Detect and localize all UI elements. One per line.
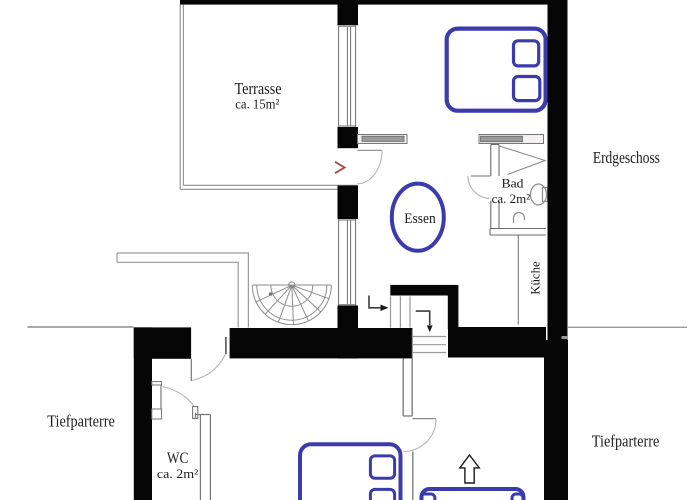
svg-text:Tiefparterre: Tiefparterre [592,431,660,450]
svg-text:Bad: Bad [502,176,525,191]
svg-text:Essen: Essen [404,211,436,227]
svg-text:Terrasse: Terrasse [235,79,282,98]
svg-text:WC: WC [167,450,189,467]
svg-text:Küche: Küche [528,261,543,295]
svg-text:ca. 2m²: ca. 2m² [157,467,199,481]
svg-text:Tiefparterre: Tiefparterre [47,411,115,430]
svg-text:ca. 2m²: ca. 2m² [492,191,531,206]
svg-text:ca. 15m²: ca. 15m² [235,98,279,113]
svg-text:Erdgeschoss: Erdgeschoss [593,148,660,167]
